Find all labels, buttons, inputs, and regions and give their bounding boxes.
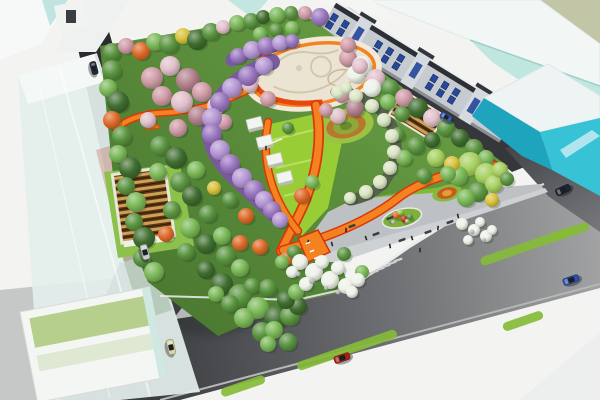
- tree: [256, 10, 270, 24]
- tree: [352, 58, 368, 74]
- tree: [197, 261, 215, 279]
- tree: [286, 266, 298, 278]
- tree: [169, 119, 187, 137]
- tree: [163, 201, 181, 219]
- person: [265, 146, 267, 151]
- tree: [285, 21, 299, 35]
- tree: [196, 234, 216, 254]
- rock: [296, 272, 301, 277]
- tree: [213, 227, 231, 245]
- tree: [187, 161, 205, 179]
- tree: [365, 99, 379, 113]
- tree: [117, 177, 135, 195]
- tree: [500, 172, 514, 186]
- tree: [208, 286, 224, 302]
- tree: [252, 239, 268, 255]
- tree: [275, 255, 289, 269]
- tree: [397, 209, 403, 215]
- tree: [118, 38, 134, 54]
- tree: [394, 106, 410, 122]
- tree: [269, 7, 285, 23]
- tree: [222, 192, 238, 208]
- tree: [103, 111, 121, 129]
- tree: [346, 286, 358, 298]
- tree: [192, 82, 212, 102]
- tree: [407, 214, 413, 220]
- tree: [337, 247, 351, 261]
- tree: [149, 163, 167, 181]
- tree: [119, 157, 141, 179]
- tree: [284, 6, 298, 20]
- tree: [160, 56, 180, 76]
- tree: [340, 37, 356, 53]
- person: [345, 228, 347, 233]
- tree: [487, 225, 497, 235]
- tree: [440, 166, 456, 182]
- tree: [319, 103, 333, 117]
- tree: [102, 60, 122, 80]
- tree: [416, 168, 432, 184]
- rock: [482, 238, 486, 242]
- tree: [385, 129, 399, 143]
- tree: [387, 145, 401, 159]
- tree: [259, 279, 277, 297]
- tree: [255, 57, 273, 75]
- tree: [107, 91, 129, 113]
- tree: [140, 112, 156, 128]
- tree: [207, 181, 221, 195]
- tree: [269, 23, 283, 37]
- rock: [405, 219, 409, 223]
- rock: [391, 220, 395, 224]
- tree: [180, 218, 200, 238]
- tree: [359, 185, 373, 199]
- tree: [331, 261, 345, 275]
- tree: [238, 66, 258, 86]
- tree: [285, 34, 299, 48]
- tree: [238, 208, 254, 224]
- tree: [294, 188, 310, 204]
- tree: [463, 235, 473, 245]
- tree: [485, 193, 499, 207]
- tree: [424, 132, 440, 148]
- tree: [407, 137, 425, 155]
- tree: [126, 192, 146, 212]
- tree: [199, 205, 217, 223]
- tree: [229, 15, 245, 31]
- tree: [377, 113, 391, 127]
- tree: [351, 273, 365, 287]
- tree: [257, 37, 275, 55]
- tree: [363, 79, 381, 97]
- tree: [383, 161, 397, 175]
- tree: [311, 8, 329, 26]
- tree: [260, 336, 276, 352]
- tree: [152, 86, 172, 106]
- rock: [324, 286, 328, 290]
- tree: [282, 122, 294, 134]
- tree: [456, 218, 468, 230]
- tree: [234, 308, 254, 328]
- tree: [141, 67, 163, 89]
- tree: [144, 262, 164, 282]
- tree: [244, 278, 260, 294]
- tree: [305, 175, 319, 189]
- tree: [279, 333, 297, 351]
- tree: [427, 149, 445, 167]
- rendering-canvas: [0, 0, 600, 400]
- tree: [380, 94, 396, 110]
- tree: [344, 192, 356, 204]
- tree: [298, 6, 312, 20]
- park-aerial-view: [0, 0, 600, 400]
- tree: [182, 186, 202, 206]
- rock: [470, 230, 475, 235]
- tree: [373, 175, 387, 189]
- tree: [221, 295, 239, 313]
- tree: [112, 126, 132, 146]
- rock: [309, 278, 315, 284]
- tree: [349, 89, 363, 103]
- tree: [158, 226, 174, 242]
- tree: [457, 189, 475, 207]
- tree: [171, 91, 193, 113]
- tree: [216, 20, 230, 34]
- tree: [165, 147, 187, 169]
- tree: [260, 91, 276, 107]
- tree: [475, 217, 485, 227]
- rock: [336, 290, 341, 295]
- tree: [231, 259, 249, 277]
- tree: [177, 243, 195, 261]
- gatehouse-door: [66, 10, 76, 23]
- tree: [232, 235, 248, 251]
- person: [419, 248, 421, 253]
- tree: [272, 212, 288, 228]
